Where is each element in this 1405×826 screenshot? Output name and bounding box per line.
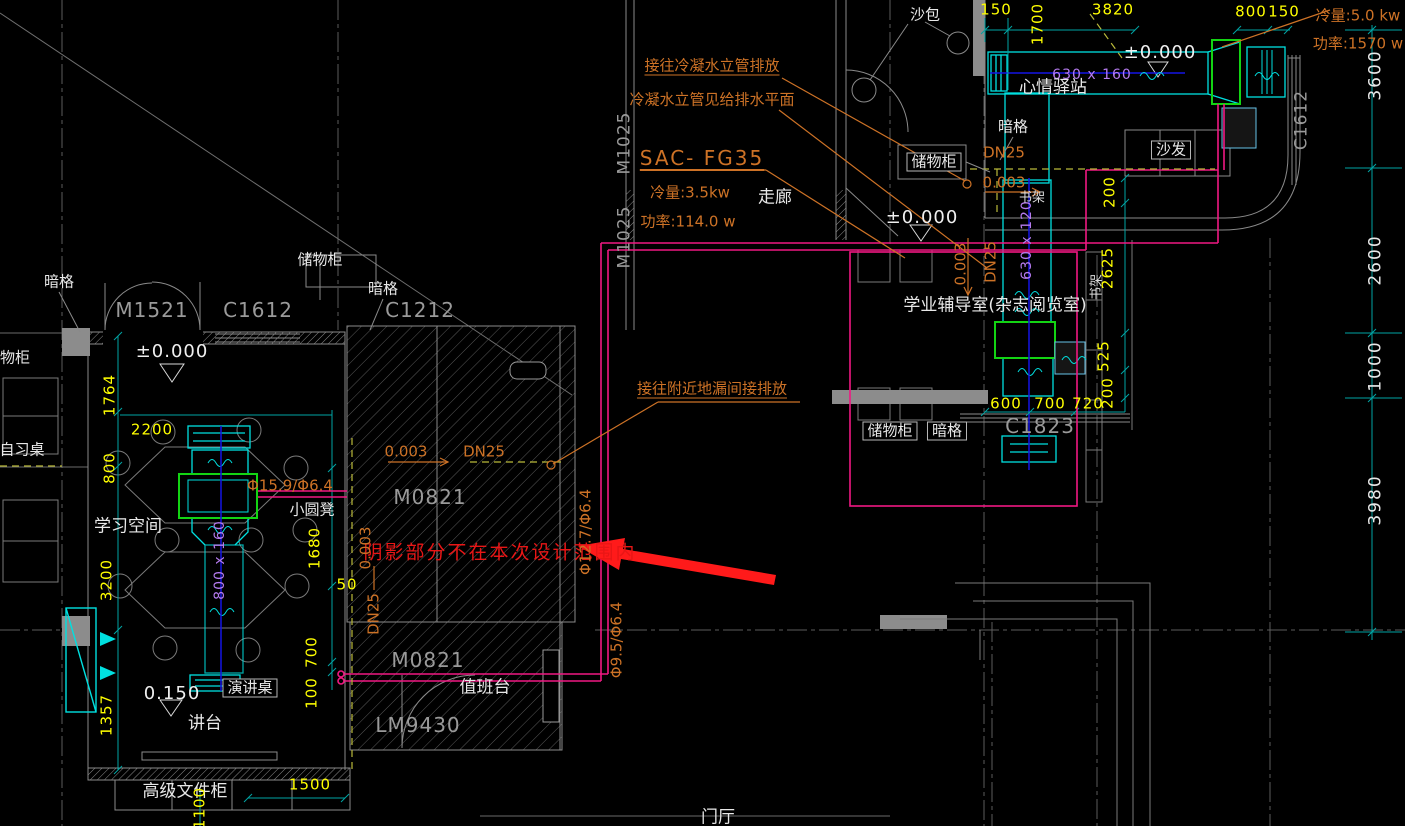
note-riser-reference: 冷凝水立管见给排水平面 [629, 93, 794, 108]
dim-1700: 1700 [1031, 3, 1046, 45]
dim-150: 150 [980, 3, 1012, 18]
dim-720: 720 [1072, 397, 1104, 412]
stool-label: 小圆凳 [289, 503, 334, 518]
storage-cabinet-label: 储物柜 [906, 153, 961, 172]
pipe-dn25-label: DN25 [463, 445, 505, 460]
dim-200: 200 [1103, 176, 1118, 208]
door-code-m1521: M1521 [115, 300, 188, 320]
door-code-lm9430: LM9430 [375, 715, 460, 735]
dim-1764: 1764 [103, 374, 118, 416]
dim-50: 50 [336, 578, 357, 593]
dim-800: 800 [1235, 5, 1267, 20]
podium-label: 讲台 [188, 716, 222, 733]
out-of-scope-warning: 阴影部分不在本次设计范围内 [363, 544, 636, 563]
plan-linework [0, 0, 1405, 826]
hidden-compartment-label: 暗格 [368, 282, 398, 297]
dim-700: 700 [305, 636, 320, 668]
dim-800: 800 [103, 452, 118, 484]
lectern-desk-label: 演讲桌 [222, 679, 277, 698]
hidden-compartment-label: 暗格 [998, 120, 1028, 135]
refrigerant-pipe-size: Φ15.9/Φ6.4 [247, 479, 333, 494]
slope-label: 0.003 [359, 527, 374, 570]
sandbag-label: 沙包 [910, 8, 940, 23]
door-code-m1025: M1025 [617, 112, 634, 175]
dim-2625: 2625 [1101, 247, 1116, 289]
dim-1500: 1500 [289, 778, 331, 793]
level-marker: ±0.000 [1124, 44, 1197, 62]
hidden-compartment-label: 暗格 [927, 422, 967, 441]
note-condensate-riser: 接往冷凝水立管排放 [644, 59, 779, 74]
dim-600: 600 [990, 397, 1022, 412]
power-label: 功率:114.0 w [640, 215, 735, 230]
level-marker: ±0.000 [136, 343, 209, 361]
note-floor-drain: 接往附近地漏间接排放 [637, 382, 787, 397]
file-cabinet-label: 高级文件柜 [143, 784, 228, 801]
axis-dim-3980: 3980 [1368, 474, 1385, 525]
corridor-label: 走廊 [758, 190, 792, 207]
bookshelf-label: 书架 [1019, 192, 1045, 205]
duty-desk-label: 值班台 [460, 680, 511, 697]
duct-size-label: 800 x 160 [213, 520, 227, 600]
cad-floor-plan-canvas: 暗格 储物柜 暗格 物柜 自习桌 M1521 C1612 C1212 ±0.00… [0, 0, 1405, 826]
room-label-tutoring: 学业辅导室(杂志阅览室) [903, 298, 1086, 315]
pipe-dn25-label: DN25 [367, 593, 382, 635]
fcu-model-label: SAC- FG35 [640, 148, 764, 168]
hidden-compartment-label: 暗格 [44, 275, 74, 290]
window-code-c1612: C1612 [223, 300, 293, 320]
window-code-c1823: C1823 [1005, 416, 1075, 436]
dim-1100: 1100 [193, 787, 208, 826]
window-code-c1612: C1612 [1294, 90, 1311, 150]
axis-dim-3600: 3600 [1368, 49, 1385, 100]
dim-1357: 1357 [100, 694, 115, 736]
power-label: 功率:1570 w [1313, 37, 1403, 52]
refrigerant-pipe-size: Φ9.5/Φ6.4 [610, 602, 625, 678]
dim-700: 700 [1034, 397, 1066, 412]
refrigerant-pipe-size: Φ12.7/Φ6.4 [579, 489, 594, 575]
cabinet-label-cropped: 物柜 [0, 351, 30, 366]
room-label-mood-station: 心情驿站 [1019, 80, 1087, 97]
self-study-desk-label: 自习桌 [0, 443, 45, 458]
cooling-capacity-label: 冷量:3.5kw [650, 186, 730, 201]
dim-3200: 3200 [100, 559, 115, 601]
level-marker: 0.150 [144, 685, 201, 703]
door-code-m1025: M1025 [617, 206, 634, 269]
slope-label: 0.003 [983, 176, 1026, 191]
level-marker: ±0.000 [886, 209, 959, 227]
dim-3820: 3820 [1092, 3, 1134, 18]
pipe-dn25-label: DN25 [983, 146, 1025, 161]
pipe-dn25-label: DN25 [984, 241, 999, 283]
room-label-study-space: 学习空间 [94, 519, 162, 536]
window-code-c1212: C1212 [385, 300, 455, 320]
entrance-hall-label: 门厅 [701, 810, 735, 826]
door-code-m0821: M0821 [393, 487, 466, 507]
axis-dim-1000: 1000 [1368, 340, 1385, 391]
dim-1680: 1680 [308, 527, 323, 569]
storage-cabinet-label: 储物柜 [862, 422, 917, 441]
storage-cabinet-label: 储物柜 [297, 253, 342, 268]
door-code-m0821: M0821 [391, 650, 464, 670]
dim-2200: 2200 [131, 423, 173, 438]
duct-size-label: 630 x 120 [1020, 200, 1034, 280]
axis-dim-2600: 2600 [1368, 234, 1385, 285]
dim-525: 525 [1097, 340, 1112, 372]
slope-label: 0.003 [954, 243, 969, 286]
cooling-capacity-label: 冷量:5.0 kw [1316, 9, 1401, 24]
dim-100: 100 [305, 677, 320, 709]
slope-label: 0.003 [385, 445, 428, 460]
sofa-label: 沙发 [1151, 141, 1191, 160]
dim-150: 150 [1268, 5, 1300, 20]
